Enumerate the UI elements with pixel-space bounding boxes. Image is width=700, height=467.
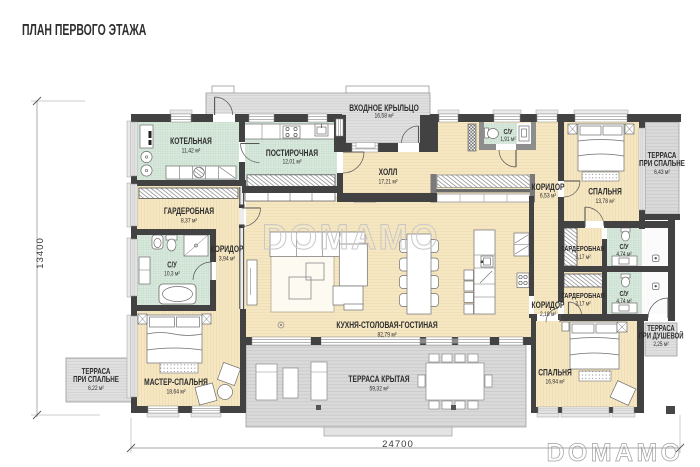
svg-text:ГАРДЕРОБНАЯ: ГАРДЕРОБНАЯ [164,206,215,216]
svg-text:DOMAMO: DOMAMO [262,218,440,257]
svg-text:1,91 м²: 1,91 м² [500,136,515,143]
svg-text:4,74 м²: 4,74 м² [616,298,631,305]
svg-text:ВХОДНОЕ КРЫЛЬЦО: ВХОДНОЕ КРЫЛЬЦО [349,103,419,113]
svg-text:ГАРДЕРОБНАЯ: ГАРДЕРОБНАЯ [561,245,604,253]
svg-text:С/У: С/У [619,290,629,298]
svg-text:13,78 м²: 13,78 м² [595,198,614,205]
svg-text:ТЕРРАСА КРЫТАЯ: ТЕРРАСА КРЫТАЯ [348,374,409,384]
svg-text:18,64 м²: 18,64 м² [166,389,185,396]
svg-text:ПРИ ДУШЕВОЙ: ПРИ ДУШЕВОЙ [639,331,684,341]
svg-text:С/У: С/У [619,243,629,251]
svg-text:17,21 м²: 17,21 м² [378,179,397,186]
svg-text:КОРИДОР: КОРИДОР [211,244,244,254]
svg-text:6,53 м²: 6,53 м² [540,193,556,200]
svg-text:СПАЛЬНЯ: СПАЛЬНЯ [588,187,622,197]
svg-text:11,42 м²: 11,42 м² [182,148,201,155]
svg-text:8,37 м²: 8,37 м² [181,218,197,225]
svg-text:2,18 м²: 2,18 м² [540,311,556,318]
svg-text:13400: 13400 [35,237,46,269]
svg-text:16,94 м²: 16,94 м² [545,379,564,386]
svg-text:12,01 м²: 12,01 м² [282,159,301,166]
svg-text:10,3 м²: 10,3 м² [164,271,180,278]
svg-text:МАСТЕР-СПАЛЬНЯ: МАСТЕР-СПАЛЬНЯ [144,377,208,387]
svg-text:СПАЛЬНЯ: СПАЛЬНЯ [538,368,572,378]
svg-text:6,43 м²: 6,43 м² [654,169,670,176]
svg-text:DOMAMO: DOMAMO [546,439,683,467]
svg-text:ПОСТИРОЧНАЯ: ПОСТИРОЧНАЯ [266,148,319,158]
svg-text:С/У: С/У [503,128,513,136]
svg-text:ПРИ СПАЛЬНЕ: ПРИ СПАЛЬНЕ [639,158,685,168]
svg-text:КУХНЯ-СТОЛОВАЯ-ГОСТИНАЯ: КУХНЯ-СТОЛОВАЯ-ГОСТИНАЯ [336,320,438,330]
svg-text:3,17 м²: 3,17 м² [575,254,590,261]
svg-text:24700: 24700 [382,439,414,450]
svg-text:6,22 м²: 6,22 м² [88,385,104,392]
svg-text:2,25 м²: 2,25 м² [653,341,668,348]
svg-text:КОТЕЛЬНАЯ: КОТЕЛЬНАЯ [170,136,212,146]
svg-text:С/У: С/У [167,262,177,270]
svg-text:ПРИ СПАЛЬНЕ: ПРИ СПАЛЬНЕ [73,374,119,384]
svg-text:КОРИДОР: КОРИДОР [532,300,565,310]
svg-text:16,58 м²: 16,58 м² [374,113,393,120]
svg-text:3,94 м²: 3,94 м² [219,256,235,263]
svg-text:ГАРДЕРОБНАЯ: ГАРДЕРОБНАЯ [561,292,604,300]
svg-text:3,17 м²: 3,17 м² [575,301,590,308]
svg-text:ХОЛЛ: ХОЛЛ [379,167,398,177]
svg-text:4,74 м²: 4,74 м² [616,251,631,258]
svg-text:ПЛАН ПЕРВОГО ЭТАЖА: ПЛАН ПЕРВОГО ЭТАЖА [22,21,147,39]
svg-text:59,32 м²: 59,32 м² [369,386,388,393]
svg-text:КОРИДОР: КОРИДОР [532,182,565,192]
svg-text:82,79 м²: 82,79 м² [377,332,396,339]
